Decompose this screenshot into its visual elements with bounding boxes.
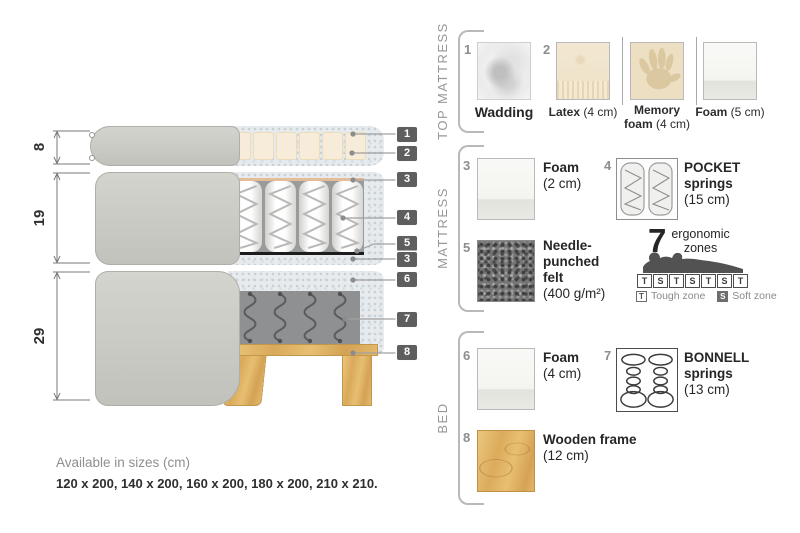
latex-image (556, 42, 610, 100)
sleeping-person-icon (636, 252, 749, 274)
item-number: 3 (463, 158, 470, 173)
foam4-image (477, 348, 535, 410)
foam2-image (477, 158, 535, 220)
item-number: 6 (463, 348, 470, 363)
section-title-mattress: MATTRESS (435, 148, 453, 308)
callout-4: 4 (397, 210, 417, 225)
dimension-19: 19 (31, 198, 49, 238)
zone-box: S (653, 274, 668, 288)
foam2-text: Foam (2 cm) (543, 160, 613, 192)
callout-5: 5 (397, 236, 417, 251)
item-number: 8 (463, 430, 470, 445)
zone-box: T (701, 274, 716, 288)
callout-7: 7 (397, 312, 417, 327)
divider (622, 37, 623, 105)
dimension-29: 29 (31, 316, 49, 356)
callout-2: 2 (397, 146, 417, 161)
callout-3: 3 (397, 172, 417, 187)
divider (696, 37, 697, 105)
pocket-springs-image (616, 158, 678, 220)
bonnell-springs-text: BONNELL springs (13 cm) (684, 350, 772, 398)
item-number: 2 (543, 42, 550, 57)
pocket-springs-text: POCKET springs (15 cm) (684, 160, 772, 208)
dimension-and-leader-lines (0, 0, 430, 470)
memory-foam-image (630, 42, 684, 100)
zone-box: T (637, 274, 652, 288)
latex-caption: Latex (4 cm) (540, 106, 626, 120)
callout-3b: 3 (397, 252, 417, 267)
foam5-caption: Foam (5 cm) (690, 106, 770, 120)
tough-zone-key: T Tough zone (636, 290, 705, 302)
memory-foam-caption: Memory foam (4 cm) (623, 104, 691, 132)
wooden-frame-text: Wooden frame (12 cm) (543, 432, 673, 464)
felt-text: Needle-punched felt (400 g/m²) (543, 238, 623, 302)
wooden-frame-image (477, 430, 535, 492)
foam5-image (703, 42, 757, 100)
bonnell-springs-icon (617, 349, 677, 411)
item-number: 7 (604, 348, 611, 363)
item-number: 4 (604, 158, 611, 173)
soft-key-icon: S (717, 291, 728, 302)
tough-key-icon: T (636, 291, 647, 302)
zone-key-legend: T Tough zone S Soft zone (636, 290, 777, 302)
item-number: 5 (463, 240, 470, 255)
wadding-image (477, 42, 531, 100)
zones-row: T S T S T S T (637, 274, 748, 288)
zone-box: T (669, 274, 684, 288)
pocket-springs-icon (617, 159, 677, 219)
zone-box: S (685, 274, 700, 288)
hand-imprint-icon (631, 43, 683, 99)
sizes-list: 120 x 200, 140 x 200, 160 x 200, 180 x 2… (56, 476, 378, 491)
zone-box: S (717, 274, 732, 288)
item-number: 1 (464, 42, 471, 57)
foam4-text: Foam (4 cm) (543, 350, 613, 382)
zone-box: T (733, 274, 748, 288)
callout-8: 8 (397, 345, 417, 360)
wadding-caption: Wadding (469, 104, 539, 120)
dimension-8: 8 (31, 127, 49, 167)
section-title-top-mattress: TOP MATTRESS (435, 1, 453, 161)
soft-zone-key: S Soft zone (717, 290, 776, 302)
section-title-bed: BED (435, 338, 453, 498)
bed-construction-infographic: 8 19 29 1 2 3 4 5 3 6 7 8 TOP MATTRESS 1… (0, 0, 800, 533)
felt-image (477, 240, 535, 302)
callout-1: 1 (397, 127, 417, 142)
callout-6: 6 (397, 272, 417, 287)
bonnell-springs-image (616, 348, 678, 412)
